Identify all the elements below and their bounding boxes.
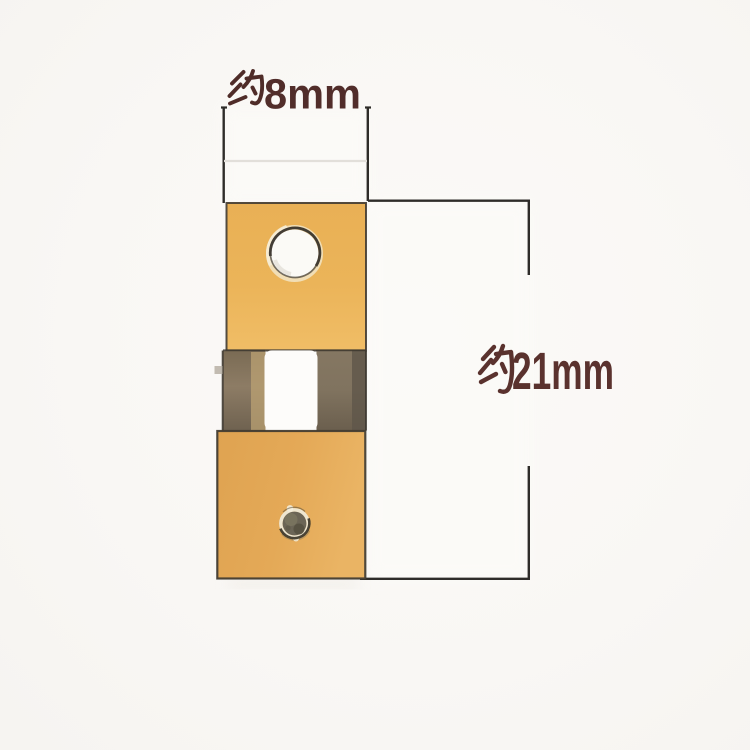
svg-text:21mm: 21mm: [512, 342, 614, 401]
svg-text:8mm: 8mm: [264, 72, 361, 119]
